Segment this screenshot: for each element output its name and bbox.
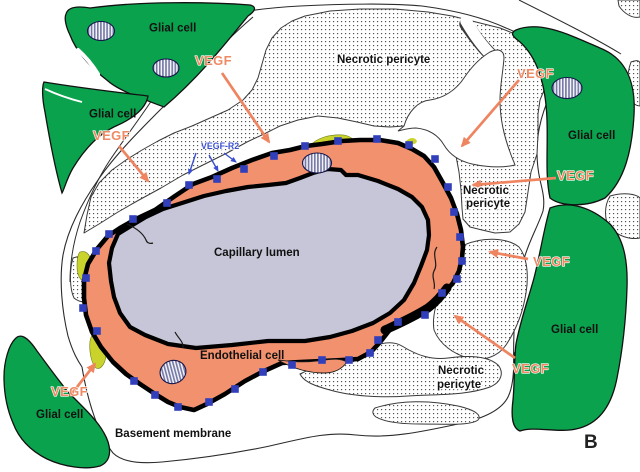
svg-text:Capillary lumen: Capillary lumen — [214, 247, 300, 259]
svg-text:VEGF: VEGF — [517, 66, 554, 81]
svg-text:Glial cell: Glial cell — [36, 409, 83, 421]
svg-text:VEGF: VEGF — [51, 384, 88, 399]
svg-text:VEGF-R2: VEGF-R2 — [201, 141, 239, 151]
svg-text:VEGF: VEGF — [533, 254, 570, 269]
svg-text:Necrotic: Necrotic — [463, 185, 510, 197]
svg-text:VEGF: VEGF — [557, 168, 594, 183]
svg-text:VEGF: VEGF — [195, 53, 232, 68]
svg-text:Glial cell: Glial cell — [551, 324, 598, 336]
svg-text:Basement membrane: Basement membrane — [115, 428, 231, 440]
svg-text:pericyte: pericyte — [466, 198, 510, 210]
svg-text:Glial cell: Glial cell — [568, 130, 615, 142]
svg-text:B: B — [584, 432, 598, 453]
svg-text:VEGF: VEGF — [512, 361, 549, 376]
svg-text:VEGF: VEGF — [93, 128, 130, 143]
svg-text:Glial cell: Glial cell — [89, 109, 136, 121]
svg-text:Glial cell: Glial cell — [149, 23, 196, 35]
svg-text:Necrotic: Necrotic — [438, 365, 485, 377]
svg-text:pericyte: pericyte — [437, 379, 481, 391]
svg-text:Endothelial cell: Endothelial cell — [200, 350, 284, 362]
svg-text:Necrotic pericyte: Necrotic pericyte — [337, 54, 430, 66]
